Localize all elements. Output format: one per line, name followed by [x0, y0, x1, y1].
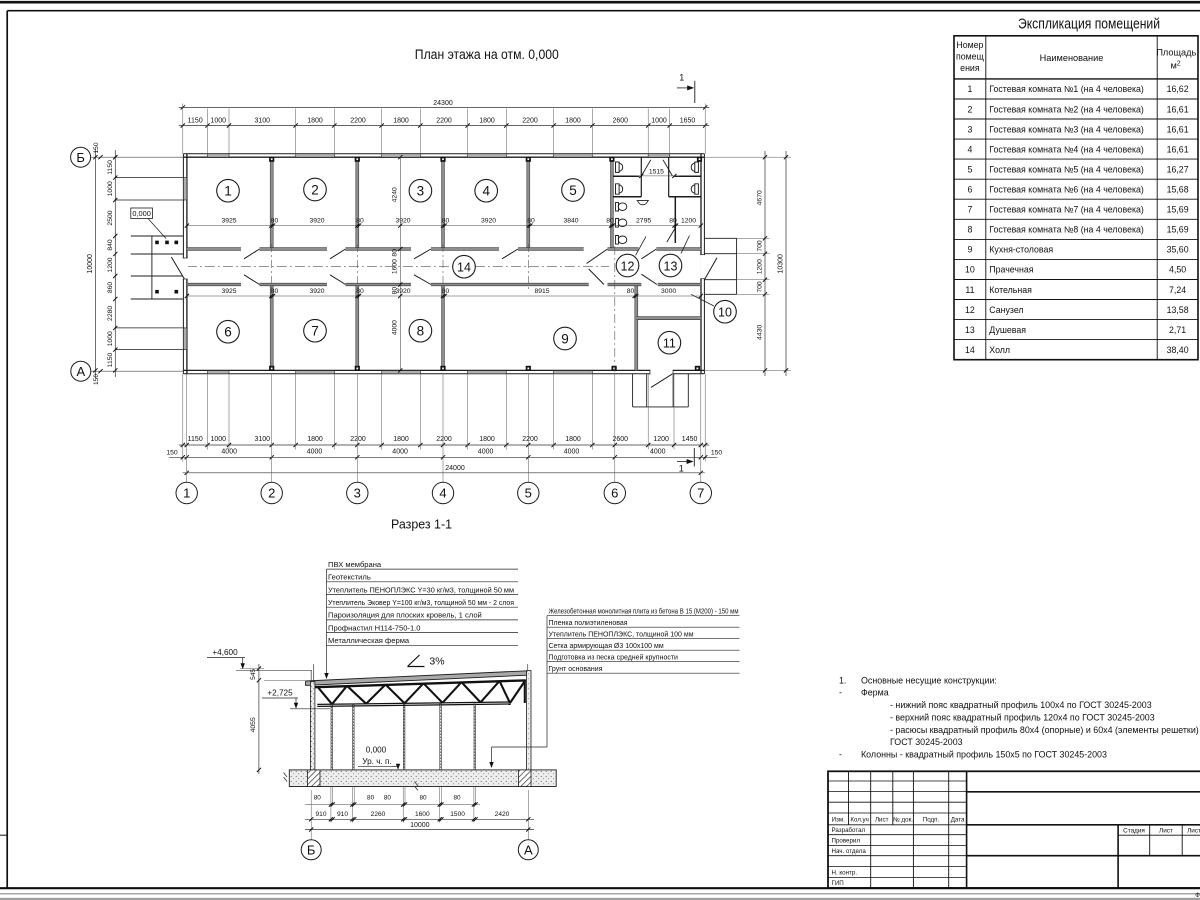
svg-text:3920: 3920	[395, 218, 410, 225]
svg-text:1150: 1150	[188, 118, 203, 125]
svg-text:11: 11	[965, 285, 974, 295]
svg-text:3840: 3840	[563, 218, 578, 225]
svg-text:Грунт основания: Грунт основания	[549, 666, 603, 673]
svg-text:9: 9	[967, 245, 972, 255]
svg-text:- расюсы квадратный профиль 80: - расюсы квадратный профиль 80х4 (опорны…	[890, 725, 1200, 735]
svg-text:80: 80	[367, 795, 375, 802]
svg-text:1150: 1150	[107, 352, 114, 367]
svg-text:700: 700	[757, 240, 764, 252]
svg-text:14: 14	[457, 261, 471, 275]
svg-text:1515: 1515	[649, 169, 664, 176]
svg-text:13: 13	[965, 325, 975, 335]
svg-text:80: 80	[356, 218, 364, 225]
svg-text:Листов: Листов	[1187, 827, 1200, 834]
svg-text:№ док.: № док.	[893, 817, 913, 824]
svg-text:4055: 4055	[250, 717, 257, 732]
svg-text:10300: 10300	[778, 254, 785, 274]
svg-text:1200: 1200	[681, 218, 696, 225]
svg-text:План этажа на отм. 0,000: План этажа на отм. 0,000	[415, 47, 559, 62]
svg-text:1.: 1.	[839, 676, 846, 686]
svg-text:1200: 1200	[107, 257, 114, 272]
svg-text:14: 14	[965, 345, 975, 355]
svg-text:80: 80	[442, 218, 450, 225]
svg-text:11: 11	[663, 337, 676, 351]
svg-text:Ур. ч. п.: Ур. ч. п.	[362, 757, 391, 766]
svg-text:Гостевая комната №7 (на 4 чело: Гостевая комната №7 (на 4 человека)	[989, 205, 1144, 215]
svg-text:Железобетонная монолитная плит: Железобетонная монолитная плита из бетон…	[549, 608, 739, 616]
svg-text:Утеплитель ПЕНОПЛЭКС, толщиной: Утеплитель ПЕНОПЛЭКС, толщиной 100 мм	[549, 631, 694, 639]
svg-text:8915: 8915	[534, 288, 549, 295]
svg-text:15,69: 15,69	[1167, 225, 1189, 235]
svg-text:10: 10	[718, 306, 732, 320]
svg-text:80: 80	[392, 287, 399, 295]
svg-text:0,000: 0,000	[366, 746, 387, 755]
svg-text:4000: 4000	[650, 449, 666, 456]
svg-text:5: 5	[525, 486, 532, 501]
svg-text:4430: 4430	[757, 325, 764, 340]
svg-text:2200: 2200	[350, 436, 366, 443]
svg-text:2200: 2200	[350, 118, 366, 125]
svg-text:8: 8	[417, 324, 425, 339]
svg-text:15,68: 15,68	[1167, 185, 1189, 195]
svg-text:15,69: 15,69	[1167, 205, 1189, 215]
svg-text:Сетка армирующая Ø3 100х100 мм: Сетка армирующая Ø3 100х100 мм	[549, 643, 664, 650]
svg-text:Утеплитель Эковер Y=100 кг/м3,: Утеплитель Эковер Y=100 кг/м3, толщиной …	[328, 598, 514, 607]
svg-text:80: 80	[669, 218, 677, 225]
svg-text:Утеплитель ПЕНОПЛЭКС Y=30 кг/м: Утеплитель ПЕНОПЛЭКС Y=30 кг/м3, толщино…	[328, 585, 514, 594]
svg-text:1500: 1500	[450, 811, 465, 818]
svg-text:2420: 2420	[495, 811, 510, 818]
svg-text:12: 12	[965, 305, 975, 315]
svg-text:80: 80	[527, 218, 535, 225]
svg-text:7,24: 7,24	[1169, 285, 1186, 295]
svg-text:Площадь,: Площадь,	[1156, 48, 1199, 58]
svg-text:1000: 1000	[107, 181, 114, 196]
svg-text:Гостевая комната №1 (на 4 чело: Гостевая комната №1 (на 4 человека)	[989, 84, 1144, 94]
svg-text:150: 150	[93, 374, 100, 385]
svg-text:150: 150	[93, 142, 100, 153]
svg-text:Геотекстиль: Геотекстиль	[328, 573, 371, 582]
svg-text:3920: 3920	[481, 218, 496, 225]
svg-text:1800: 1800	[565, 436, 581, 443]
svg-text:Ф: Ф	[1195, 893, 1200, 899]
svg-text:13,58: 13,58	[1167, 305, 1189, 315]
svg-text:1800: 1800	[393, 436, 409, 443]
svg-text:2200: 2200	[436, 118, 452, 125]
svg-text:910: 910	[315, 811, 326, 818]
svg-text:2795: 2795	[636, 218, 651, 225]
svg-text:3: 3	[354, 486, 361, 501]
svg-text:1000: 1000	[211, 118, 227, 125]
svg-text:+2,725: +2,725	[267, 689, 293, 698]
svg-text:80: 80	[419, 795, 427, 802]
svg-text:545: 545	[250, 669, 257, 680]
svg-text:Ферма: Ферма	[861, 688, 889, 698]
svg-text:Разрез 1-1: Разрез 1-1	[391, 518, 452, 532]
svg-text:10000: 10000	[410, 822, 430, 829]
svg-text:Пленка полиэтиленовая: Пленка полиэтиленовая	[549, 620, 628, 627]
svg-text:1000: 1000	[107, 331, 114, 346]
svg-text:7: 7	[697, 486, 704, 501]
svg-text:Экспликация помещений: Экспликация помещений	[1018, 17, 1160, 33]
svg-text:4: 4	[482, 184, 490, 199]
svg-text:2: 2	[268, 486, 275, 501]
svg-text:Основные несущие конструкции:: Основные несущие конструкции:	[861, 676, 997, 686]
svg-text:1200: 1200	[757, 259, 764, 274]
svg-text:4000: 4000	[221, 449, 237, 456]
svg-text:1600: 1600	[392, 259, 399, 274]
svg-text:Колонны - квадратный профиль 1: Колонны - квадратный профиль 150х5 по ГО…	[861, 750, 1107, 760]
svg-text:Подп.: Подп.	[923, 817, 940, 824]
svg-text:1800: 1800	[479, 118, 495, 125]
svg-text:3100: 3100	[255, 436, 271, 443]
svg-text:ГОСТ 30245-2003: ГОСТ 30245-2003	[890, 737, 963, 747]
svg-text:6: 6	[611, 486, 618, 501]
svg-text:4670: 4670	[757, 190, 764, 205]
svg-text:24000: 24000	[445, 465, 465, 472]
svg-text:16,61: 16,61	[1167, 104, 1189, 114]
svg-text:80: 80	[384, 795, 392, 802]
svg-text:3920: 3920	[309, 288, 324, 295]
svg-text:1800: 1800	[307, 118, 323, 125]
svg-text:А: А	[524, 842, 533, 857]
svg-text:1800: 1800	[565, 118, 581, 125]
svg-text:2260: 2260	[371, 811, 386, 818]
svg-text:12: 12	[621, 259, 635, 273]
svg-text:Гостевая комната №4 (на 4 чело: Гостевая комната №4 (на 4 человека)	[989, 144, 1144, 154]
svg-text:1600: 1600	[415, 811, 430, 818]
svg-text:Санузел: Санузел	[989, 305, 1023, 315]
svg-text:Дата: Дата	[951, 817, 965, 824]
svg-text:2: 2	[311, 182, 319, 197]
svg-text:Б: Б	[76, 150, 85, 165]
svg-text:помещ: помещ	[956, 52, 985, 62]
svg-text:Проверил: Проверил	[832, 838, 861, 845]
svg-text:Подготовка из песка средней кр: Подготовка из песка средней крупности	[549, 654, 679, 662]
svg-text:1450: 1450	[682, 436, 698, 443]
svg-text:Б: Б	[307, 842, 316, 857]
svg-text:Стадия: Стадия	[1123, 827, 1145, 834]
svg-text:5: 5	[967, 164, 972, 174]
svg-text:-: -	[839, 688, 842, 698]
svg-text:4000: 4000	[392, 320, 399, 335]
svg-text:Металлическая ферма: Металлическая ферма	[328, 636, 410, 645]
svg-text:Гостевая комната №5 (на 4 чело: Гостевая комната №5 (на 4 человека)	[989, 164, 1144, 174]
svg-text:6: 6	[224, 325, 232, 340]
svg-text:ГИП: ГИП	[832, 880, 844, 887]
svg-text:13: 13	[664, 259, 678, 273]
svg-text:80: 80	[271, 218, 279, 225]
svg-text:+4,600: +4,600	[212, 648, 238, 657]
svg-text:2: 2	[967, 104, 972, 114]
svg-text:Холл: Холл	[989, 345, 1010, 355]
svg-text:16,27: 16,27	[1167, 164, 1189, 174]
svg-text:4000: 4000	[392, 449, 408, 456]
svg-text:4,50: 4,50	[1169, 265, 1186, 275]
svg-text:1200: 1200	[653, 436, 669, 443]
svg-text:2200: 2200	[436, 436, 452, 443]
svg-text:Лист: Лист	[1159, 827, 1173, 834]
svg-text:А: А	[76, 364, 85, 379]
svg-text:4: 4	[967, 144, 972, 154]
svg-text:Н. контр.: Н. контр.	[832, 870, 858, 877]
svg-text:1000: 1000	[211, 436, 227, 443]
svg-text:- верхний пояс квадратный проф: - верхний пояс квадратный профиль 120х4 …	[890, 713, 1155, 723]
svg-text:2500: 2500	[107, 210, 114, 225]
svg-text:ения: ения	[960, 63, 980, 73]
svg-text:16,61: 16,61	[1167, 124, 1189, 134]
svg-text:16,62: 16,62	[1167, 84, 1189, 94]
svg-text:80: 80	[627, 288, 635, 295]
svg-text:1000: 1000	[651, 118, 667, 125]
svg-text:8: 8	[967, 225, 972, 235]
svg-text:4000: 4000	[564, 449, 580, 456]
svg-text:4000: 4000	[307, 449, 323, 456]
svg-text:1800: 1800	[307, 436, 323, 443]
svg-text:Изм.: Изм.	[832, 817, 846, 824]
svg-text:Гостевая комната №2 (на 4 чело: Гостевая комната №2 (на 4 человека)	[989, 104, 1144, 114]
svg-text:1150: 1150	[107, 160, 114, 175]
svg-text:- нижний пояс квадратный профи: - нижний пояс квадратный профиль 100х4 п…	[890, 700, 1152, 710]
svg-text:3: 3	[417, 184, 425, 199]
svg-text:3925: 3925	[221, 218, 236, 225]
svg-text:80: 80	[606, 218, 614, 225]
svg-text:4000: 4000	[478, 449, 494, 456]
svg-text:ПВХ мембрана: ПВХ мембрана	[328, 560, 382, 569]
svg-text:910: 910	[337, 811, 348, 818]
svg-text:3: 3	[967, 124, 972, 134]
svg-text:Разработал: Разработал	[832, 827, 866, 834]
svg-text:2,71: 2,71	[1169, 325, 1186, 335]
svg-text:Лист: Лист	[875, 817, 889, 824]
svg-text:1650: 1650	[680, 118, 696, 125]
svg-text:9: 9	[561, 331, 569, 346]
svg-text:Прачечная: Прачечная	[989, 265, 1033, 275]
svg-text:1: 1	[224, 184, 232, 199]
svg-text:1: 1	[183, 486, 190, 501]
svg-text:2200: 2200	[522, 118, 538, 125]
svg-text:80: 80	[453, 795, 461, 802]
svg-text:-: -	[839, 750, 842, 760]
svg-text:4240: 4240	[392, 187, 399, 202]
svg-text:0,000: 0,000	[132, 209, 151, 218]
svg-text:10000: 10000	[87, 254, 94, 274]
svg-text:35,60: 35,60	[1167, 245, 1189, 255]
svg-text:Котельная: Котельная	[989, 285, 1032, 295]
svg-text:2280: 2280	[107, 306, 114, 321]
svg-text:7: 7	[311, 324, 319, 339]
svg-text:10: 10	[965, 265, 975, 275]
svg-text:1800: 1800	[393, 118, 409, 125]
svg-text:4: 4	[439, 486, 446, 501]
svg-text:700: 700	[757, 281, 764, 293]
svg-text:38,40: 38,40	[1167, 345, 1189, 355]
svg-text:1150: 1150	[188, 436, 203, 443]
svg-text:1: 1	[967, 84, 972, 94]
svg-text:3925: 3925	[221, 288, 236, 295]
svg-text:24300: 24300	[433, 100, 453, 107]
svg-text:7: 7	[967, 205, 972, 215]
svg-text:3100: 3100	[255, 118, 271, 125]
svg-text:Номер: Номер	[956, 40, 983, 50]
svg-text:150: 150	[711, 450, 723, 457]
svg-text:80: 80	[442, 288, 450, 295]
svg-text:Душевая: Душевая	[989, 325, 1026, 335]
svg-text:1: 1	[679, 464, 684, 474]
svg-text:80: 80	[314, 795, 322, 802]
svg-text:840: 840	[107, 239, 114, 251]
svg-text:3000: 3000	[661, 288, 676, 295]
svg-text:2600: 2600	[613, 118, 629, 125]
svg-text:м2: м2	[1170, 61, 1180, 71]
svg-text:1800: 1800	[479, 436, 495, 443]
svg-text:Пароизоляция для плоских крове: Пароизоляция для плоских кровель, 1 слой	[328, 611, 482, 620]
svg-text:860: 860	[107, 282, 114, 294]
svg-text:3920: 3920	[309, 218, 324, 225]
svg-text:16,61: 16,61	[1167, 144, 1189, 154]
svg-text:Гостевая комната №8 (на 4 чело: Гостевая комната №8 (на 4 человека)	[989, 225, 1144, 235]
svg-text:6: 6	[967, 185, 972, 195]
svg-text:5: 5	[569, 183, 577, 198]
svg-text:Профнастил Н114-750-1.0: Профнастил Н114-750-1.0	[328, 623, 421, 632]
svg-text:Кол.уч: Кол.уч	[850, 817, 869, 824]
svg-text:80: 80	[392, 249, 399, 257]
svg-text:Гостевая комната №3 (на 4 чело: Гостевая комната №3 (на 4 человека)	[989, 124, 1144, 134]
svg-text:150: 150	[166, 450, 178, 457]
svg-text:Кухня-столовая: Кухня-столовая	[989, 245, 1053, 255]
svg-text:Гостевая комната №6 (на 4 чело: Гостевая комната №6 (на 4 человека)	[989, 185, 1144, 195]
svg-text:80: 80	[356, 288, 364, 295]
svg-text:2200: 2200	[522, 436, 538, 443]
svg-text:80: 80	[271, 288, 279, 295]
svg-text:Нач. отдела: Нач. отдела	[832, 848, 867, 855]
svg-text:1: 1	[679, 73, 684, 83]
svg-text:Наименование: Наименование	[1040, 53, 1104, 63]
svg-text:3%: 3%	[429, 656, 444, 668]
